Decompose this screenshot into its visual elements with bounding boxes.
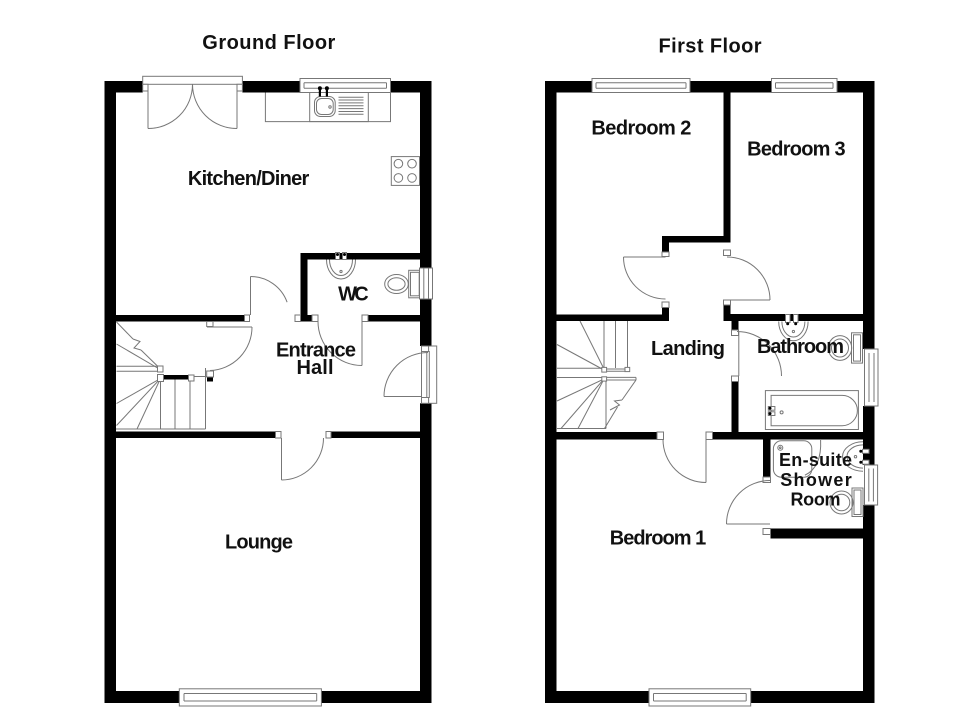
svg-text:First Floor: First Floor <box>659 36 762 58</box>
svg-text:Room: Room <box>791 490 841 510</box>
svg-text:Bedroom 2: Bedroom 2 <box>591 118 691 140</box>
svg-text:Bedroom 3: Bedroom 3 <box>747 139 846 161</box>
svg-text:En-suite: En-suite <box>779 450 852 470</box>
svg-text:Lounge: Lounge <box>225 532 293 554</box>
svg-text:Landing: Landing <box>651 338 725 360</box>
svg-text:Bathroom: Bathroom <box>757 336 844 358</box>
svg-text:WC: WC <box>338 284 369 306</box>
svg-text:Bedroom 1: Bedroom 1 <box>610 528 707 550</box>
svg-text:Ground Floor: Ground Floor <box>202 32 335 54</box>
svg-text:Shower: Shower <box>780 470 852 490</box>
svg-text:Kitchen/Diner: Kitchen/Diner <box>188 168 310 190</box>
svg-text:Hall: Hall <box>297 357 334 379</box>
